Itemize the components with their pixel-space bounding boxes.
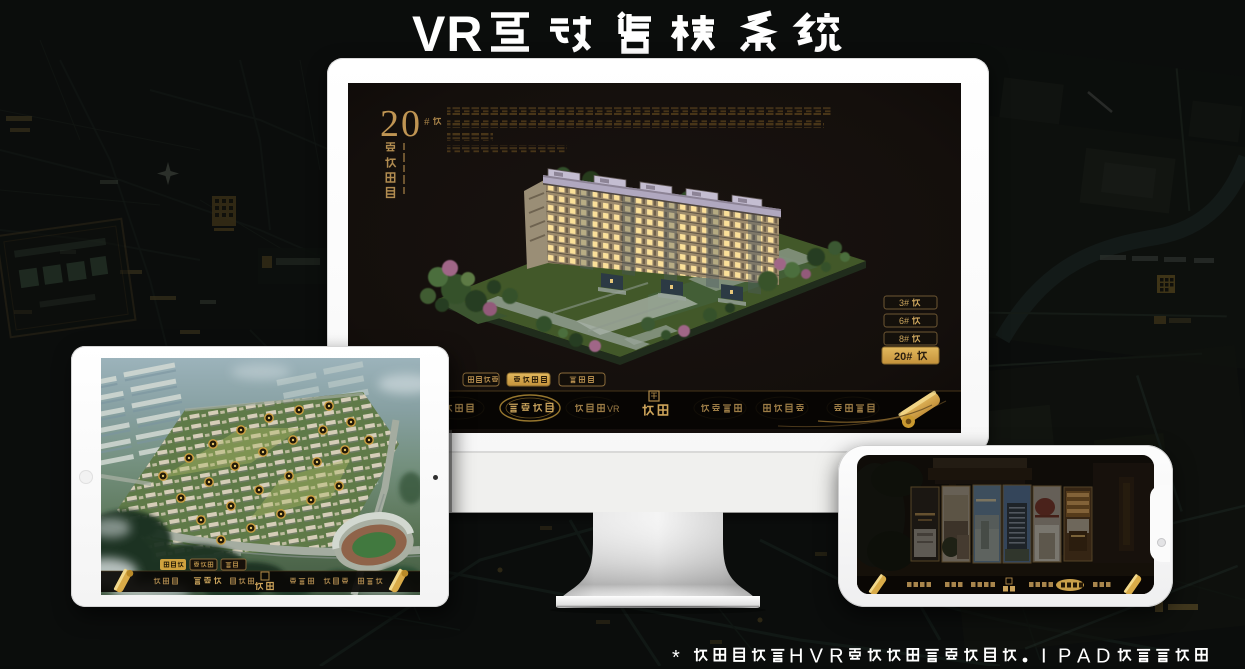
svg-text:6#: 6# <box>899 316 909 326</box>
svg-text:P: P <box>1058 646 1071 668</box>
svg-text:HVR: HVR <box>789 646 850 668</box>
svg-text:D: D <box>1096 646 1110 668</box>
svg-text:8#: 8# <box>899 334 909 344</box>
svg-text:20: 20 <box>380 103 422 145</box>
svg-text:20#: 20# <box>894 351 912 363</box>
svg-text:I: I <box>1041 646 1047 668</box>
svg-text:3#: 3# <box>899 298 909 308</box>
svg-text:VR: VR <box>607 404 620 414</box>
svg-text:VR: VR <box>412 6 483 62</box>
svg-text:A: A <box>1077 646 1091 668</box>
svg-text:#: # <box>424 116 430 128</box>
